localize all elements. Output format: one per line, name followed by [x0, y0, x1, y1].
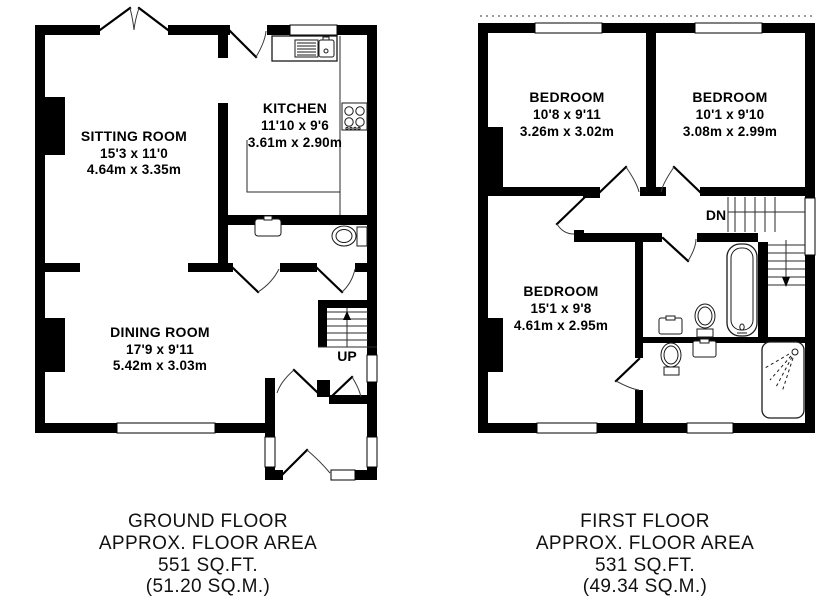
- bedroom2-size-ft: 10'1 x 9'10: [696, 107, 765, 122]
- shower-room-door-arc: [616, 359, 639, 390]
- window: [805, 198, 815, 255]
- ground-floor-caption: GROUND FLOOR APPROX. FLOOR AREA 551 SQ.F…: [99, 511, 317, 597]
- french-doors-icon: [100, 8, 168, 30]
- ground-floor-sqft: 551 SQ.FT.: [158, 555, 258, 576]
- sitting-room-size-ft: 15'3 x 11'0: [100, 146, 168, 161]
- bedroom1-size-m: 3.26m x 3.02m: [520, 124, 614, 139]
- first-floor-sqm: (49.34 SQ.M.): [583, 576, 708, 597]
- shower-room-toilet-icon: [661, 343, 681, 375]
- first-floor-plan: BEDROOM 10'8 x 9'11 3.26m x 3.02m BEDROO…: [478, 16, 815, 433]
- shower-icon: [762, 342, 804, 418]
- first-floor-sqft: 531 SQ.FT.: [595, 555, 695, 576]
- kitchen-size-ft: 11'10 x 9'6: [261, 118, 329, 133]
- ground-floor-sqm: (51.20 SQ.M.): [146, 576, 271, 597]
- stair-hall-door-arc: [317, 268, 355, 292]
- cloakroom-door-arc: [233, 268, 279, 292]
- inner-hall-door-arc: [331, 377, 361, 397]
- sitting-room-size-m: 4.64m x 3.35m: [87, 162, 181, 177]
- front-door-arc: [283, 450, 330, 474]
- chimney-breast: [45, 97, 65, 155]
- kitchen-sink-icon: [272, 36, 337, 61]
- first-floor-title: FIRST FLOOR: [580, 511, 710, 532]
- sitting-room-label: SITTING ROOM: [81, 128, 187, 144]
- hob-icon: [342, 103, 367, 130]
- bedroom3-label: BEDROOM: [523, 283, 598, 299]
- dining-room-label: DINING ROOM: [110, 324, 210, 340]
- window: [535, 23, 602, 33]
- bedroom2-size-m: 3.08m x 2.99m: [683, 124, 777, 139]
- back-door-arc: [230, 31, 266, 57]
- window: [117, 423, 215, 433]
- bedroom2-door-arc: [661, 167, 700, 192]
- bedroom1-label: BEDROOM: [529, 89, 604, 105]
- window: [367, 437, 377, 467]
- bedroom3-size-ft: 15'1 x 9'8: [531, 301, 592, 316]
- wc-toilet-icon: [332, 226, 367, 246]
- bedroom3-size-m: 4.61m x 2.95m: [514, 318, 608, 333]
- first-floor-caption: FIRST FLOOR APPROX. FLOOR AREA 531 SQ.FT…: [536, 511, 754, 597]
- kitchen-size-m: 3.61m x 2.90m: [248, 135, 342, 150]
- window: [265, 437, 275, 467]
- bathroom-toilet-icon: [695, 304, 715, 337]
- bedroom1-door-arc: [600, 167, 639, 192]
- ground-floor-walls: [35, 25, 377, 480]
- chimney-breast: [45, 318, 65, 372]
- window: [290, 25, 337, 35]
- ground-floor-plan: SITTING ROOM 15'3 x 11'0 4.64m x 3.35m K…: [35, 8, 377, 480]
- window: [367, 355, 377, 382]
- first-floor-area-line: APPROX. FLOOR AREA: [536, 533, 754, 554]
- bedroom3-door-arc: [557, 197, 585, 234]
- floorplan-drawing: SITTING ROOM 15'3 x 11'0 4.64m x 3.35m K…: [0, 0, 835, 601]
- window: [687, 423, 733, 433]
- dining-room-size-m: 5.42m x 3.03m: [113, 358, 207, 373]
- ground-floor-area-line: APPROX. FLOOR AREA: [99, 533, 317, 554]
- bedroom2-label: BEDROOM: [692, 89, 767, 105]
- wc-basin-icon: [255, 216, 281, 236]
- dining-hall-door-arc: [277, 370, 318, 393]
- bathroom-basin-icon: [659, 316, 682, 334]
- up-label: UP: [337, 348, 356, 364]
- bathroom-door-arc: [663, 238, 696, 261]
- chimney-breast: [488, 318, 503, 372]
- window: [331, 470, 355, 480]
- ground-floor-title: GROUND FLOOR: [128, 511, 288, 532]
- window: [537, 423, 597, 433]
- window: [695, 23, 762, 33]
- bedroom1-size-ft: 10'8 x 9'11: [533, 107, 601, 122]
- dn-label: DN: [706, 207, 726, 223]
- dining-room-size-ft: 17'9 x 9'11: [126, 342, 194, 357]
- kitchen-label: KITCHEN: [263, 100, 327, 116]
- bathtub-icon: [727, 244, 757, 336]
- shower-room-basin-icon: [693, 339, 716, 357]
- chimney-breast: [488, 127, 503, 187]
- floorplan-page: SITTING ROOM 15'3 x 11'0 4.64m x 3.35m K…: [0, 0, 835, 601]
